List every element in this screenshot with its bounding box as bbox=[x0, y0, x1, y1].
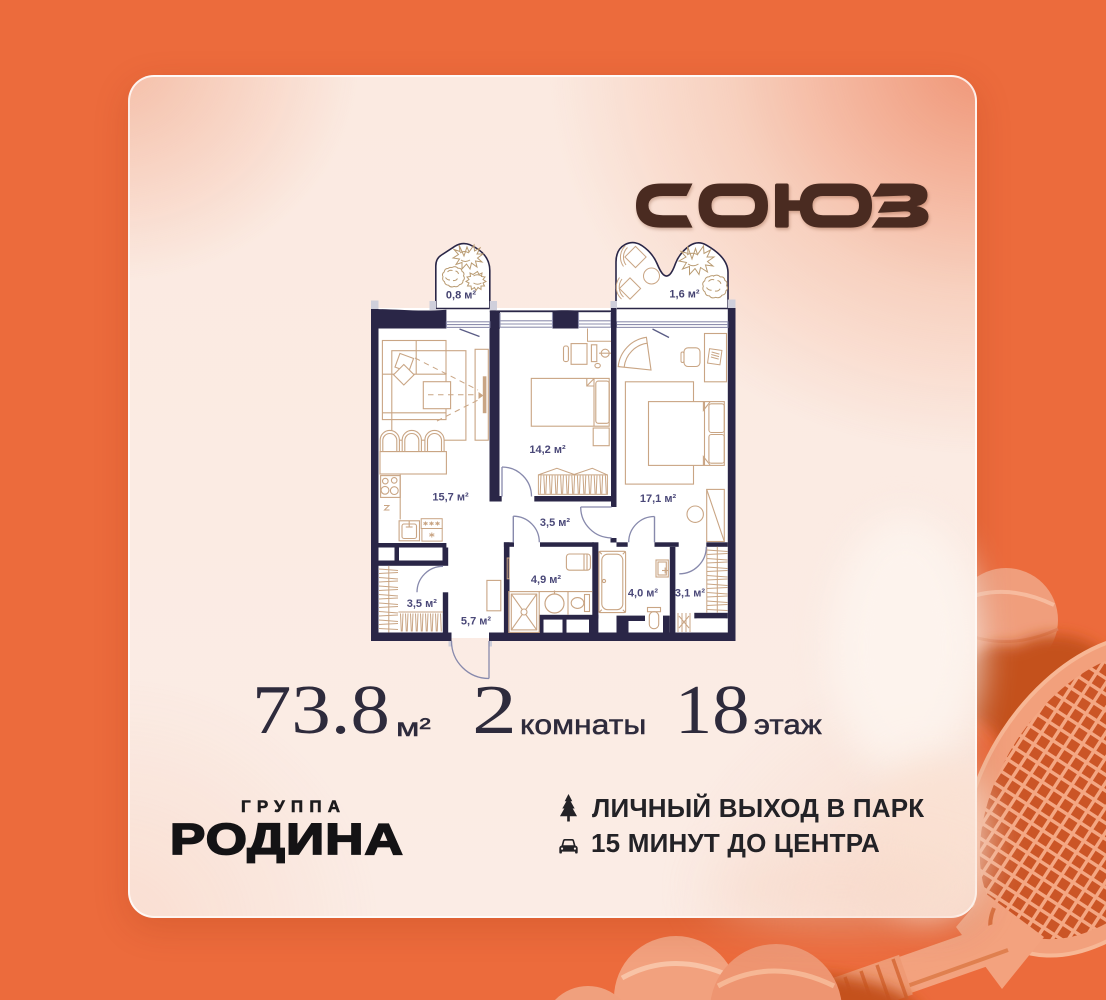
svg-text:1,6 м²: 1,6 м² bbox=[669, 289, 699, 301]
svg-text:5,7 м²: 5,7 м² bbox=[461, 616, 491, 628]
svg-text:4,0 м²: 4,0 м² bbox=[628, 588, 658, 600]
svg-text:15,7 м²: 15,7 м² bbox=[432, 492, 469, 504]
svg-text:3,5 м²: 3,5 м² bbox=[407, 598, 437, 610]
svg-text:4,9 м²: 4,9 м² bbox=[531, 574, 561, 586]
svg-text:3,5 м²: 3,5 м² bbox=[540, 517, 570, 529]
svg-text:14,2 м²: 14,2 м² bbox=[529, 444, 566, 456]
svg-text:0,8 м²: 0,8 м² bbox=[446, 290, 476, 302]
svg-text:3,1 м²: 3,1 м² bbox=[675, 588, 705, 600]
svg-text:17,1 м²: 17,1 м² bbox=[640, 493, 677, 505]
